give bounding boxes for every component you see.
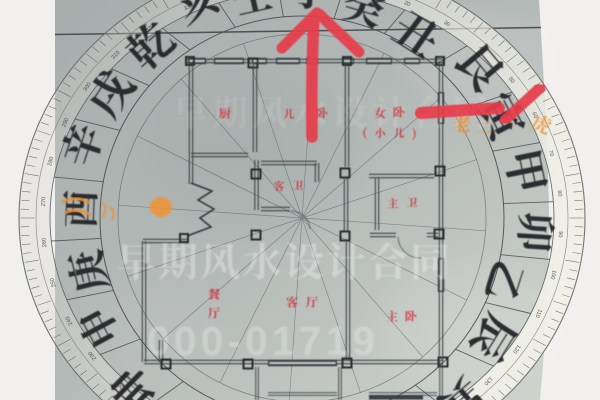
svg-text:80: 80: [556, 190, 563, 197]
svg-text:90: 90: [557, 231, 563, 238]
svg-text:260: 260: [41, 237, 48, 247]
svg-text:000-01719: 000-01719: [147, 318, 379, 364]
svg-text:270: 270: [41, 197, 48, 207]
